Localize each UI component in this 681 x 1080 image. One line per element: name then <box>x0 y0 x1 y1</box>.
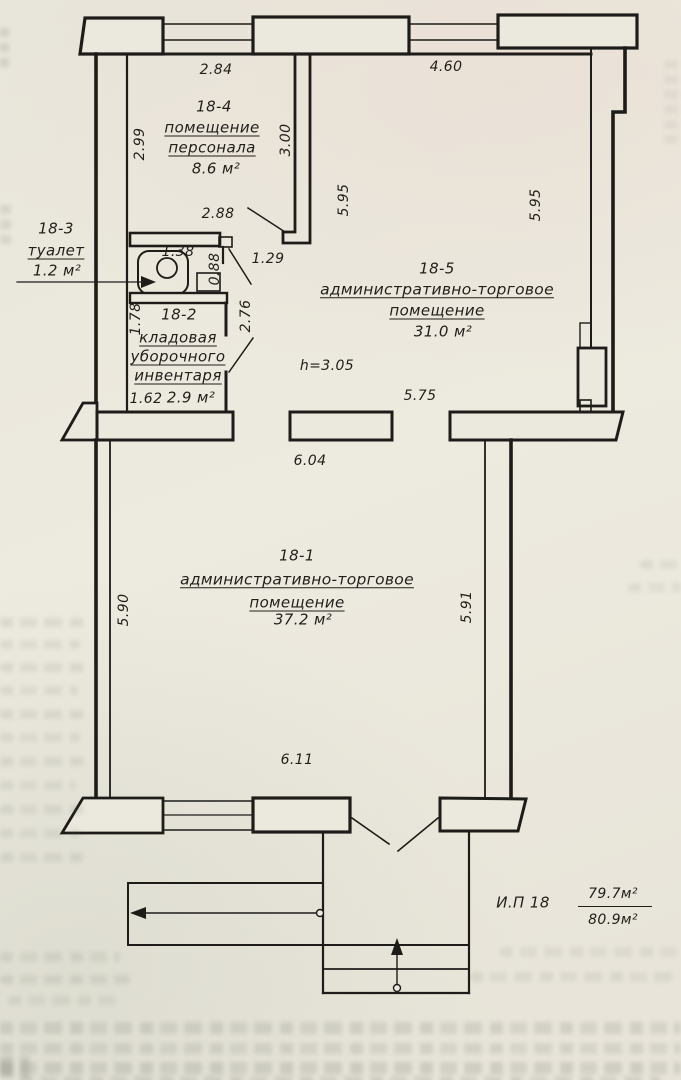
room-18-2-name: инвентаря <box>134 369 222 384</box>
dim-storage-right: 2.76 <box>239 300 253 333</box>
area-fraction-bar <box>578 906 652 907</box>
ceiling-height-note: h=3.05 <box>300 359 354 373</box>
dim-room1-bottom: 6.11 <box>281 753 314 767</box>
dim-top-left: 2.84 <box>200 63 233 77</box>
room-18-4-area: 8.6 м² <box>192 162 240 177</box>
room-18-3-id: 18-3 <box>38 222 74 237</box>
room-18-5-area: 31.0 м² <box>414 325 472 340</box>
dim-room5-right: 5.95 <box>529 189 543 222</box>
dim-right-18-4: 3.00 <box>279 124 293 157</box>
plan-labels: 18-4 помещение персонала 8.6 м² 18-3 туа… <box>0 0 681 1080</box>
dim-storage-bottom: 1.62 <box>130 392 163 406</box>
room-18-2-name: кладовая <box>139 331 217 346</box>
dim-room1-right: 5.91 <box>460 591 474 624</box>
room-18-3-name: туалет <box>28 244 85 259</box>
dim-bottom-18-4: 2.88 <box>202 207 235 221</box>
dim-toilet-height: 0.88 <box>208 253 222 286</box>
dim-storage-left: 1.78 <box>129 303 143 336</box>
total-area-denominator: 80.9м² <box>588 913 638 927</box>
room-18-2-id: 18-2 <box>161 308 197 323</box>
room-18-4-name: персонала <box>168 141 255 156</box>
room-18-4-id: 18-4 <box>196 100 232 115</box>
room-18-1-id: 18-1 <box>279 549 315 564</box>
room-18-1-name: помещение <box>249 596 344 611</box>
total-area-numerator: 79.7м² <box>588 887 638 901</box>
room-18-4-name: помещение <box>164 121 259 136</box>
room-18-5-id: 18-5 <box>419 262 455 277</box>
unit-label: И.П 18 <box>496 896 550 911</box>
dim-left-18-4: 2.99 <box>133 128 147 161</box>
dim-opening: 6.04 <box>294 454 327 468</box>
room-18-5-name: помещение <box>389 304 484 319</box>
dim-room5-left: 5.95 <box>337 184 351 217</box>
room-18-1-name: административно-торговое <box>180 572 414 588</box>
dim-door: 1.29 <box>252 252 285 266</box>
room-18-2-area: 2.9 м² <box>167 391 215 406</box>
room-18-2-name: уборочного <box>131 350 226 365</box>
room-18-5-name: административно-торговое <box>320 282 554 298</box>
dim-top-right: 4.60 <box>430 60 463 74</box>
room-18-3-area: 1.2 м² <box>33 264 81 279</box>
scanned-floor-plan-page: 18-4 помещение персонала 8.6 м² 18-3 туа… <box>0 0 681 1080</box>
dim-room5-bottom: 5.75 <box>404 389 437 403</box>
room-18-1-area: 37.2 м² <box>274 613 332 628</box>
dim-room1-left: 5.90 <box>117 594 131 627</box>
dim-toilet-width: 1.38 <box>162 245 195 259</box>
